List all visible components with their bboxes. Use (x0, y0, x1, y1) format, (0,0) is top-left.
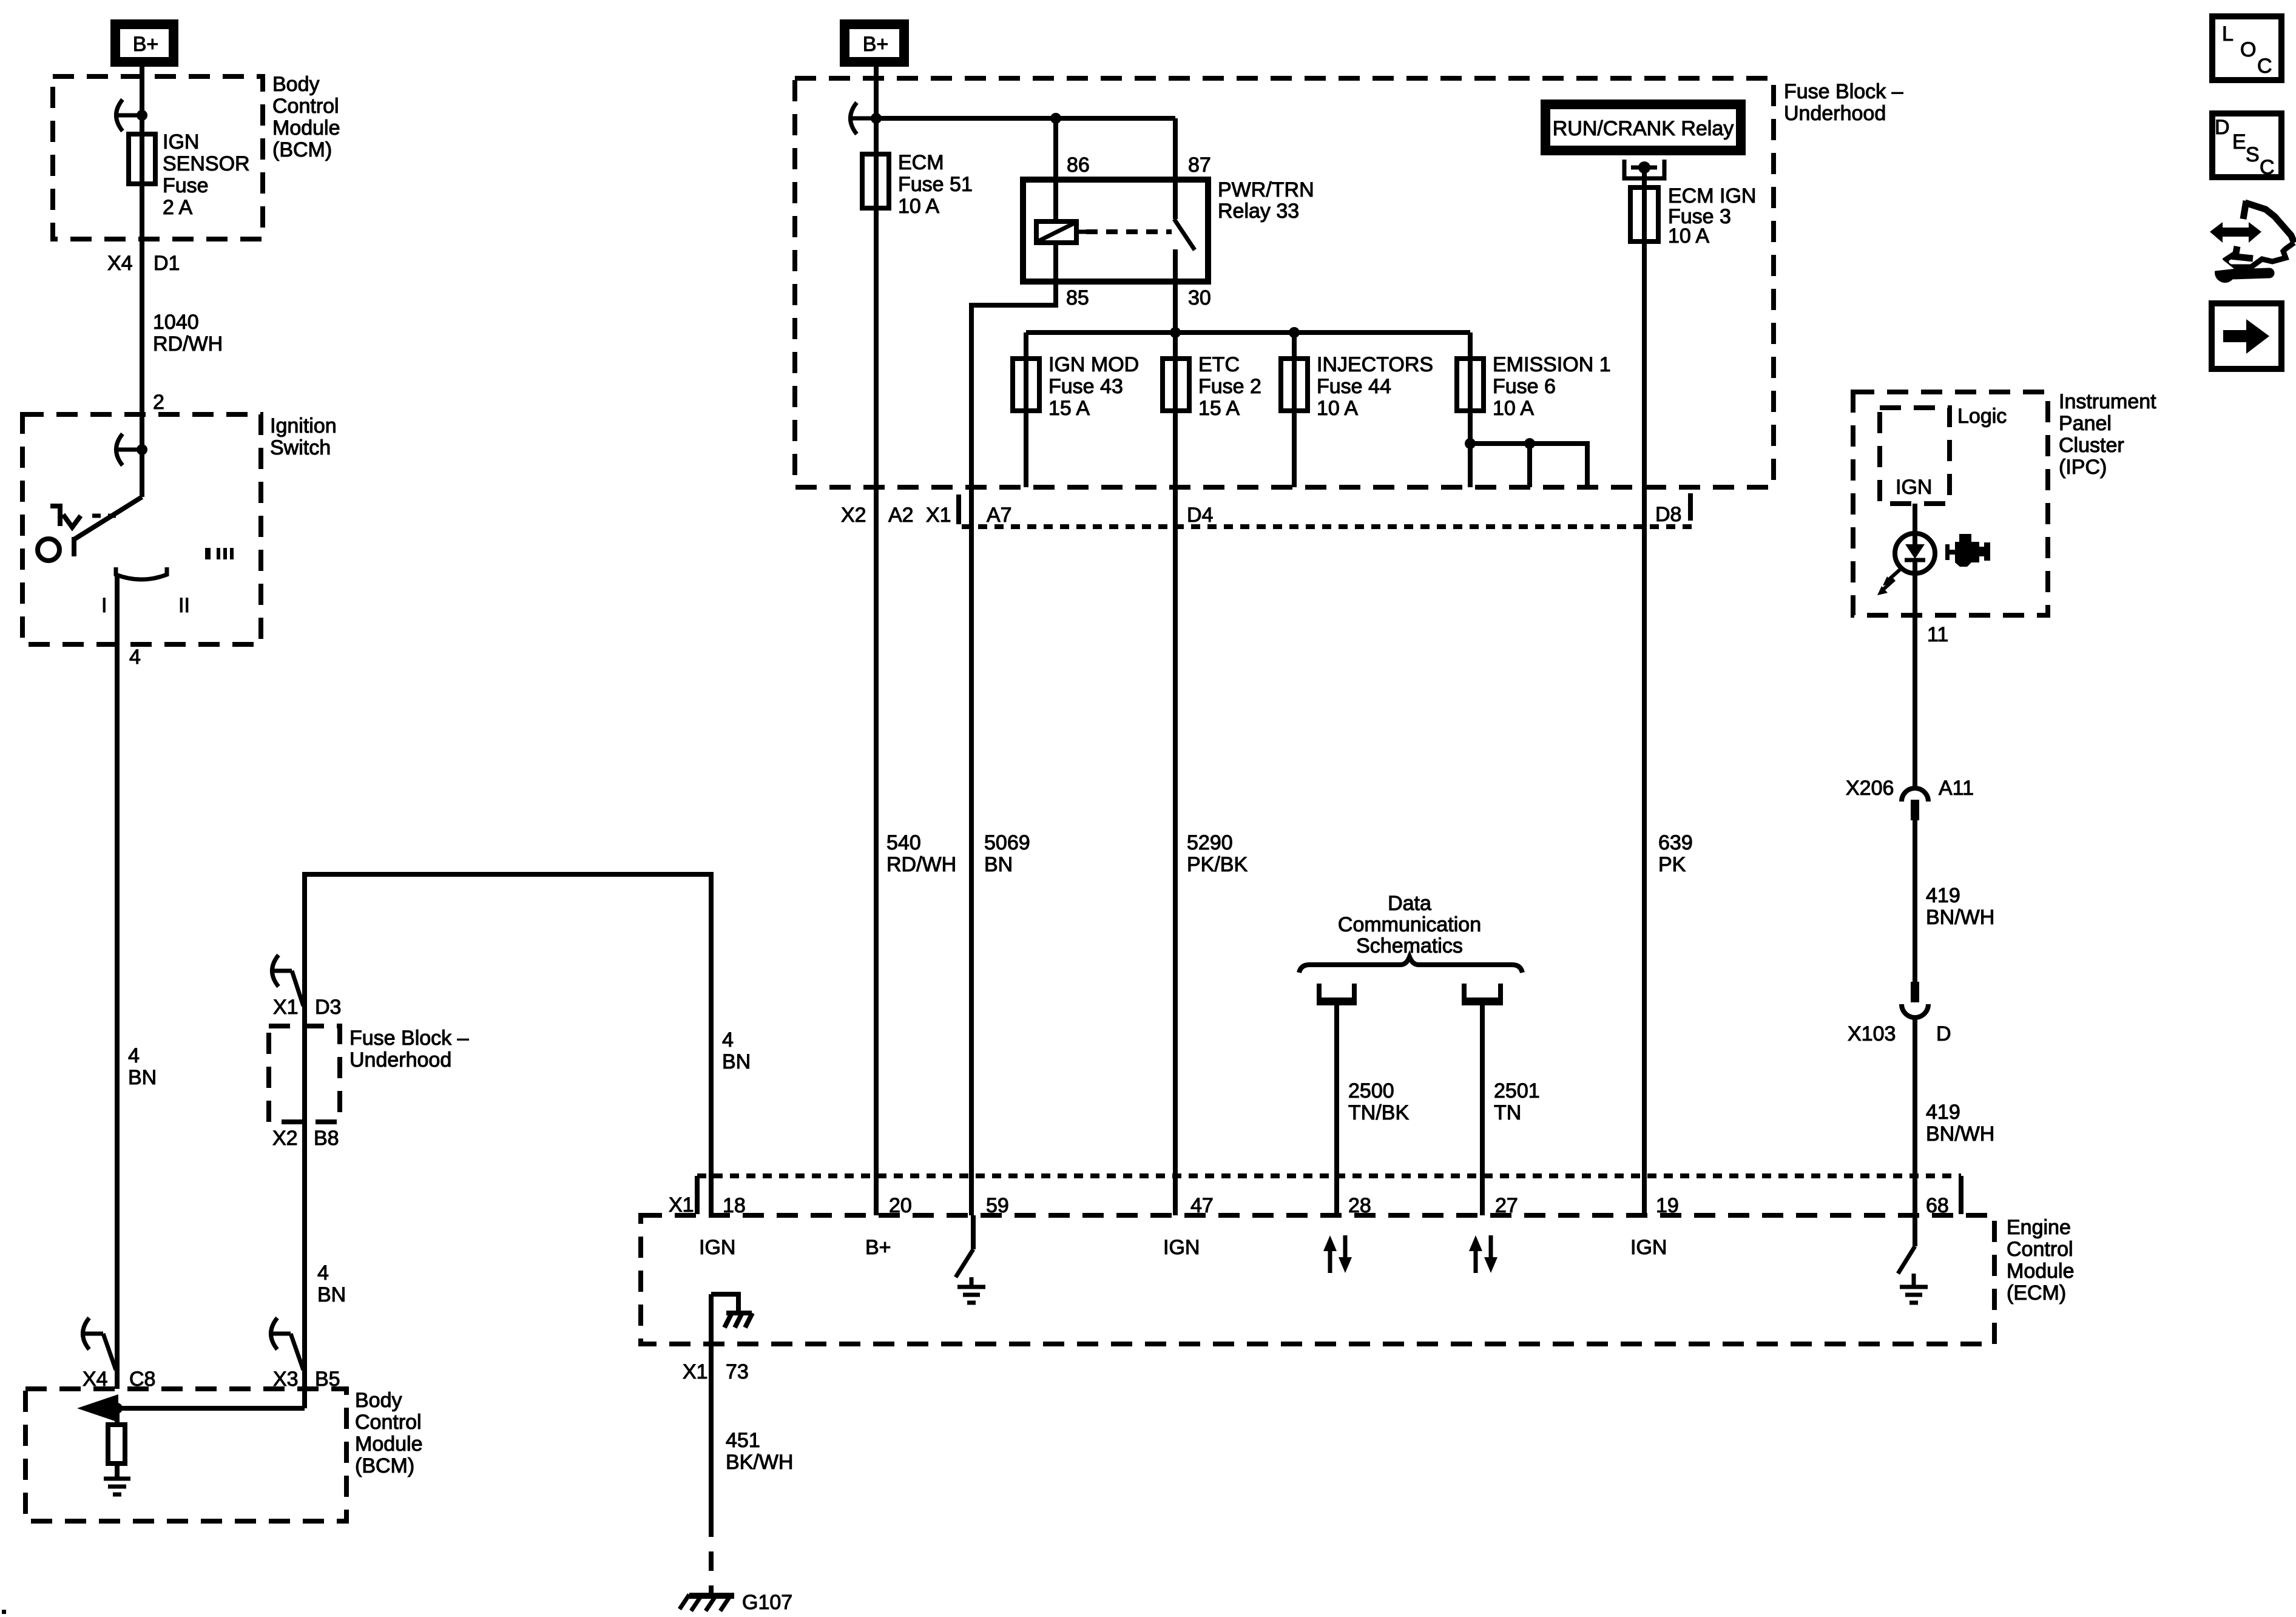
svg-text:15 A: 15 A (1048, 397, 1090, 420)
svg-text:S: S (2246, 143, 2260, 166)
svg-text:2: 2 (153, 391, 164, 414)
svg-text:O: O (2240, 38, 2256, 61)
svg-text:4: 4 (128, 1044, 140, 1067)
svg-text:X4: X4 (107, 252, 133, 275)
svg-text:Body: Body (272, 73, 320, 96)
svg-text:73: 73 (726, 1360, 749, 1383)
svg-text:ECM: ECM (898, 151, 944, 174)
svg-text:X2: X2 (841, 504, 866, 527)
svg-text:X1: X1 (926, 504, 951, 527)
svg-text:Body: Body (355, 1389, 402, 1412)
svg-text:L: L (2222, 22, 2234, 46)
svg-text:419: 419 (1926, 884, 1960, 907)
svg-text:C: C (2260, 156, 2275, 179)
svg-text:IGN: IGN (1896, 476, 1932, 499)
svg-text:47: 47 (1190, 1194, 1214, 1217)
svg-text:Underhood: Underhood (349, 1048, 451, 1072)
svg-text:D: D (2215, 116, 2230, 139)
svg-text:D1: D1 (154, 252, 180, 275)
svg-text:(ECM): (ECM) (2007, 1281, 2066, 1305)
svg-text:Control: Control (272, 95, 339, 118)
svg-text:Control: Control (2007, 1238, 2073, 1261)
svg-text:Data: Data (1388, 892, 1431, 915)
svg-text:2500: 2500 (1348, 1079, 1394, 1102)
svg-text:X206: X206 (1846, 777, 1894, 800)
svg-text:Underhood: Underhood (1784, 102, 1886, 125)
svg-text:540: 540 (886, 831, 921, 854)
svg-text:85: 85 (1066, 286, 1089, 309)
svg-text:Engine: Engine (2007, 1216, 2071, 1239)
svg-text:C: C (2257, 55, 2272, 78)
svg-text:BN: BN (317, 1283, 346, 1306)
svg-text:Fuse 2: Fuse 2 (1198, 375, 1261, 398)
svg-text:10 A: 10 A (1493, 397, 1534, 420)
svg-text:Fuse Block –: Fuse Block – (349, 1027, 469, 1050)
svg-text:Ignition: Ignition (270, 414, 337, 437)
svg-text:PWR/TRN: PWR/TRN (1218, 178, 1314, 201)
svg-text:X1: X1 (683, 1360, 708, 1383)
svg-text:IGN: IGN (163, 130, 199, 154)
svg-text:Fuse 51: Fuse 51 (898, 173, 973, 196)
svg-text:4: 4 (722, 1028, 734, 1052)
svg-text:IGN MOD: IGN MOD (1048, 353, 1139, 376)
svg-text:I: I (101, 594, 107, 617)
svg-text:SENSOR: SENSOR (163, 152, 250, 175)
svg-text:Fuse Block –: Fuse Block – (1784, 80, 1903, 103)
svg-text:RD/WH: RD/WH (886, 853, 956, 876)
svg-text:Switch: Switch (270, 436, 331, 459)
svg-text:X2: X2 (272, 1127, 298, 1150)
svg-text:10 A: 10 A (1668, 224, 1709, 248)
svg-text:Relay 33: Relay 33 (1218, 200, 1299, 223)
svg-text:Fuse 43: Fuse 43 (1048, 375, 1123, 398)
svg-text:451: 451 (726, 1429, 760, 1452)
svg-text:419: 419 (1926, 1101, 1960, 1124)
svg-text:BK/WH: BK/WH (726, 1451, 793, 1474)
svg-text:10 A: 10 A (1317, 397, 1358, 420)
svg-text:RD/WH: RD/WH (153, 333, 223, 356)
svg-text:E: E (2232, 130, 2246, 154)
svg-text:D3: D3 (315, 996, 341, 1019)
svg-text:BN/WH: BN/WH (1926, 906, 1994, 929)
svg-text:D: D (1936, 1022, 1951, 1045)
svg-text:BN: BN (722, 1050, 751, 1073)
svg-text:Fuse: Fuse (163, 174, 209, 197)
svg-text:18: 18 (723, 1194, 746, 1217)
svg-text:ETC: ETC (1198, 353, 1240, 376)
svg-text:10 A: 10 A (898, 195, 939, 218)
svg-text:B+: B+ (865, 1236, 891, 1259)
svg-text:Panel: Panel (2059, 412, 2112, 435)
svg-text:59: 59 (986, 1194, 1009, 1217)
svg-text:D8: D8 (1655, 503, 1681, 526)
svg-text:Module: Module (272, 116, 340, 140)
svg-text:Cluster: Cluster (2059, 434, 2124, 457)
svg-text:Fuse 6: Fuse 6 (1493, 375, 1556, 398)
svg-text:Logic: Logic (1957, 405, 2007, 428)
svg-text:II: II (178, 594, 190, 617)
svg-text:EMISSION 1: EMISSION 1 (1493, 353, 1611, 376)
svg-text:X1: X1 (273, 996, 299, 1019)
svg-text:2501: 2501 (1494, 1079, 1540, 1102)
svg-text:87: 87 (1188, 154, 1211, 177)
svg-text:IGN: IGN (1163, 1236, 1200, 1259)
svg-text:2 A: 2 A (163, 196, 192, 219)
svg-text:86: 86 (1067, 154, 1090, 177)
svg-text:X1: X1 (669, 1193, 694, 1217)
svg-text:4: 4 (129, 646, 141, 669)
svg-text:D4: D4 (1187, 504, 1213, 527)
svg-text:11: 11 (1927, 623, 1948, 646)
svg-text:Communication: Communication (1338, 913, 1481, 936)
svg-text:5290: 5290 (1187, 831, 1233, 854)
svg-text:Instrument: Instrument (2059, 390, 2156, 413)
svg-text:20: 20 (889, 1194, 912, 1217)
svg-text:IGN: IGN (1630, 1236, 1667, 1259)
svg-text:27: 27 (1495, 1194, 1518, 1217)
svg-text:28: 28 (1348, 1194, 1371, 1217)
svg-text:19: 19 (1656, 1194, 1679, 1217)
svg-text:68: 68 (1926, 1194, 1949, 1217)
svg-text:639: 639 (1658, 831, 1693, 854)
svg-text:A11: A11 (1939, 777, 1974, 800)
svg-text:B8: B8 (314, 1127, 339, 1150)
svg-text:BN: BN (984, 853, 1013, 876)
svg-text:4: 4 (317, 1261, 329, 1284)
svg-text:5069: 5069 (984, 831, 1030, 854)
svg-text:(BCM): (BCM) (272, 138, 332, 161)
svg-text:B+: B+ (133, 33, 159, 56)
svg-text:PK: PK (1658, 853, 1686, 876)
svg-text:X103: X103 (1848, 1022, 1896, 1045)
svg-text:BN/WH: BN/WH (1926, 1122, 1994, 1146)
svg-text:(BCM): (BCM) (355, 1454, 414, 1477)
svg-text:Module: Module (2007, 1260, 2075, 1283)
svg-text:G107: G107 (742, 1591, 792, 1614)
svg-text:30: 30 (1188, 286, 1211, 309)
svg-text:INJECTORS: INJECTORS (1317, 353, 1433, 376)
svg-text:A2: A2 (888, 504, 914, 527)
svg-text:Module: Module (355, 1433, 423, 1456)
svg-text:TN: TN (1494, 1101, 1521, 1124)
svg-text:ECM IGN: ECM IGN (1668, 184, 1756, 208)
svg-text:RUN/CRANK Relay: RUN/CRANK Relay (1553, 117, 1734, 140)
svg-text:Control: Control (355, 1411, 422, 1434)
svg-text:BN: BN (128, 1066, 157, 1089)
svg-text:15 A: 15 A (1198, 397, 1240, 420)
svg-text:1040: 1040 (153, 311, 199, 334)
svg-text:TN/BK: TN/BK (1348, 1101, 1409, 1124)
svg-text:B+: B+ (863, 33, 889, 56)
svg-text:Fuse 44: Fuse 44 (1317, 375, 1391, 398)
svg-text:A7: A7 (987, 504, 1012, 527)
svg-text:(IPC): (IPC) (2059, 456, 2107, 479)
svg-text:IGN: IGN (699, 1236, 735, 1259)
svg-text:PK/BK: PK/BK (1187, 853, 1248, 876)
